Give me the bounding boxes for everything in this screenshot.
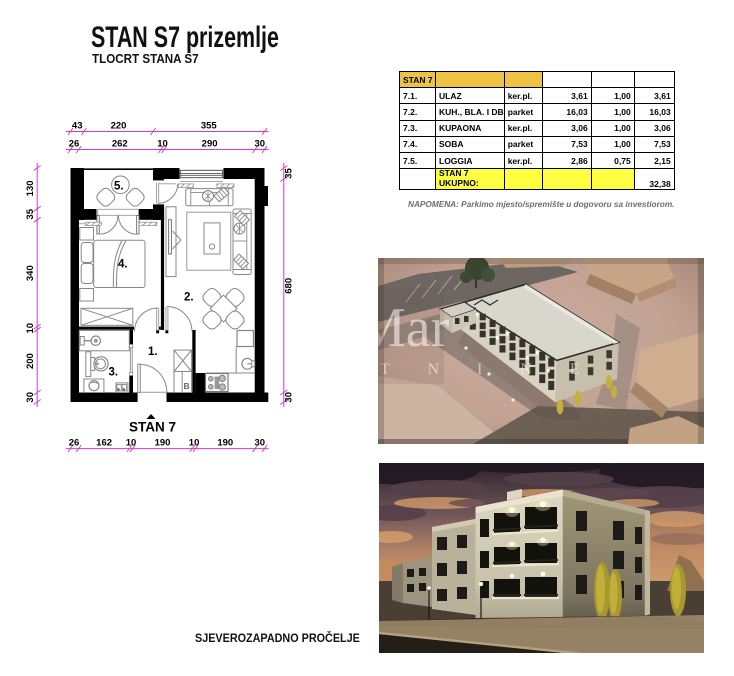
svg-text:26: 26 [69, 139, 80, 150]
svg-text:B: B [184, 381, 190, 391]
svg-text:35: 35 [25, 208, 36, 219]
svg-text:26: 26 [69, 438, 80, 449]
svg-text:STAN 7: STAN 7 [129, 420, 176, 435]
svg-text:30: 30 [284, 392, 295, 403]
svg-text:262: 262 [112, 139, 128, 150]
svg-text:10: 10 [157, 139, 168, 150]
svg-text:355: 355 [201, 121, 218, 132]
svg-text:2.: 2. [184, 292, 194, 304]
svg-text:5.: 5. [114, 181, 124, 193]
svg-text:220: 220 [111, 121, 127, 132]
svg-text:130: 130 [25, 180, 36, 196]
svg-text:43: 43 [72, 121, 83, 132]
svg-text:35: 35 [284, 168, 295, 179]
svg-text:30: 30 [255, 438, 266, 449]
svg-text:10: 10 [25, 323, 36, 334]
svg-text:T N I N E: T N I N E [380, 361, 597, 378]
svg-text:680: 680 [284, 278, 295, 294]
svg-text:30: 30 [255, 139, 266, 150]
svg-text:200: 200 [25, 353, 36, 369]
svg-text:3.: 3. [109, 367, 119, 379]
svg-text:4.: 4. [118, 259, 128, 271]
svg-text:1.: 1. [148, 346, 158, 358]
svg-text:190: 190 [155, 438, 171, 449]
svg-text:Mar: Mar [378, 297, 450, 359]
svg-text:10: 10 [126, 438, 137, 449]
svg-text:340: 340 [25, 265, 36, 281]
svg-text:290: 290 [202, 139, 218, 150]
svg-text:162: 162 [96, 438, 112, 449]
svg-text:190: 190 [217, 438, 233, 449]
svg-text:10: 10 [189, 438, 200, 449]
svg-text:30: 30 [25, 392, 36, 403]
